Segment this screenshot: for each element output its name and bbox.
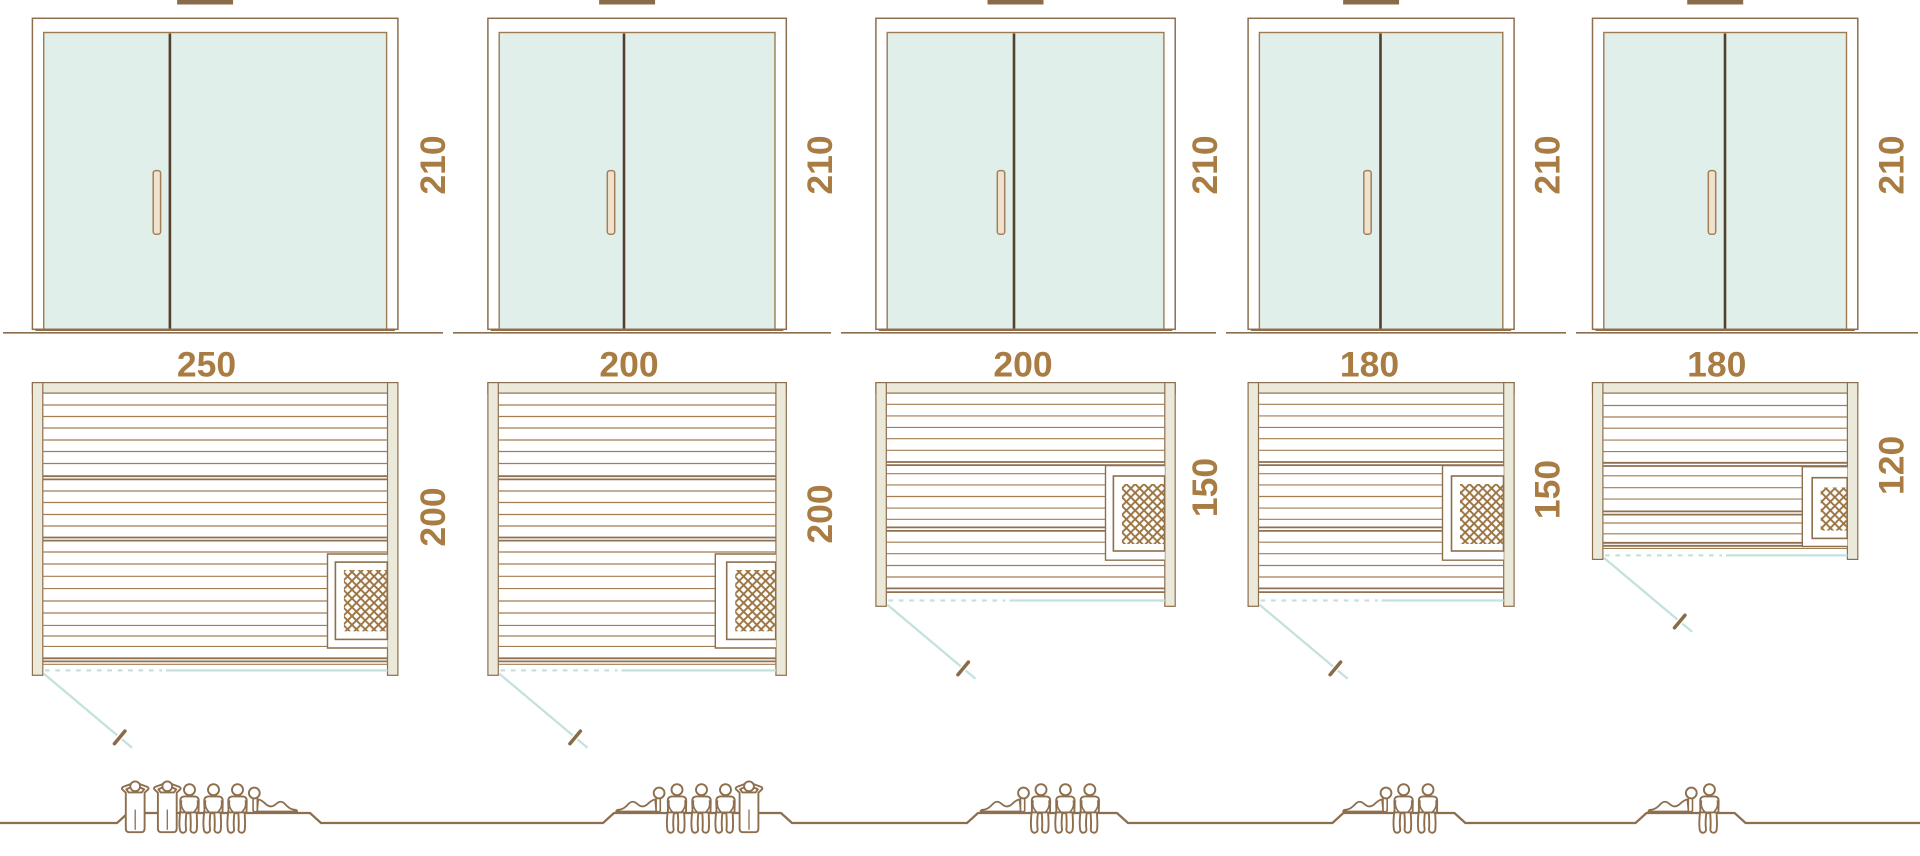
svg-text:210: 210 [413,135,453,194]
svg-text:210: 210 [1528,135,1568,194]
svg-text:180: 180 [1687,345,1746,385]
svg-text:200: 200 [993,345,1052,385]
svg-text:210: 210 [800,135,840,194]
svg-text:210: 210 [1872,135,1912,194]
svg-text:180: 180 [1340,345,1399,385]
svg-text:120: 120 [1872,436,1912,495]
svg-text:200: 200 [599,345,658,385]
svg-text:210: 210 [1185,135,1225,194]
svg-text:150: 150 [1185,458,1225,517]
svg-text:200: 200 [413,487,453,546]
svg-text:250: 250 [177,345,236,385]
svg-text:200: 200 [800,484,840,543]
svg-text:150: 150 [1528,460,1568,519]
